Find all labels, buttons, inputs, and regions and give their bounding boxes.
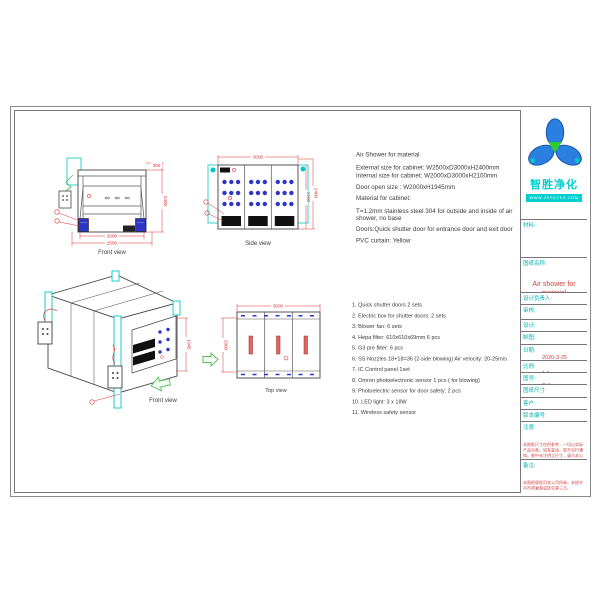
field-audit: 审核: xyxy=(521,305,587,320)
field-remark: 备注: 本图纸版权归本公司所有，未经许可不得复制或转交第三方。 xyxy=(521,460,587,493)
remark-text: 本图纸版权归本公司所有，未经许可不得复制或转交第三方。 xyxy=(523,480,585,491)
top-dim-depth: 2000 xyxy=(224,340,229,351)
door-roller-right xyxy=(136,219,146,232)
field-drawing-no: 图号: P-1 xyxy=(521,373,587,385)
parts-list-item: 10. LED light: 3 x 18W xyxy=(352,399,542,405)
field-customer: 客户: xyxy=(521,398,587,410)
front-dim-width-inner: 2000 xyxy=(107,234,118,239)
spec-line: PVC curtain: Yellow xyxy=(356,237,526,244)
side-dim-width: 3000 xyxy=(253,155,264,160)
control-panel xyxy=(220,168,230,173)
pendant-control-box xyxy=(38,322,52,344)
flow-arrow-right xyxy=(203,353,218,366)
field-designer: 设计负责人: xyxy=(521,293,587,305)
callout-marker xyxy=(55,219,59,223)
side-dim-height-outer: 2400 xyxy=(314,188,319,199)
iso-dim-door-height: 1945 xyxy=(187,339,192,350)
company-name: 智胜净化 xyxy=(523,176,585,192)
parts-list: 1. Quick shutter doors 2 sets 2. Electri… xyxy=(352,302,542,420)
cyan-cap xyxy=(211,168,216,173)
side-view-label: Side view xyxy=(245,241,271,247)
door-roller-left xyxy=(79,219,89,232)
corner-post xyxy=(112,271,119,281)
spec-title: Air Shower for material xyxy=(356,151,526,158)
control-box-front xyxy=(123,226,135,232)
callout-marker xyxy=(90,400,94,404)
front-dim-width-outer: 2500 xyxy=(107,241,118,246)
spec-line: Material for cabinet: xyxy=(356,195,526,202)
parts-list-item: 9. Photoelectric sensor for door safety:… xyxy=(352,388,542,394)
field-draft: 制图: xyxy=(521,332,587,345)
field-notice: 注意: 本图纸尺寸仅供参考，一切以实际产品为准。如有变动，恕不另行通知。图中未注… xyxy=(521,422,587,460)
parts-list-item: 5. G3 pre filter: 6 pcs xyxy=(352,345,542,351)
spec-block: Air Shower for material External size fo… xyxy=(356,151,526,244)
top-view-label: Top view xyxy=(265,388,286,394)
parts-list-item: 8. Omron photoelectronic sensor 1 pcs ( … xyxy=(352,377,542,383)
callout-marker xyxy=(204,200,208,204)
field-date: 日期: 2020-3-25 xyxy=(521,345,587,361)
spec-line: External size for cabinet: W2500xD3000xH… xyxy=(356,164,526,171)
spec-line: Internal size for cabinet: W2000xD3000xH… xyxy=(356,172,526,179)
title-block: 智胜净化 WWW.ZSFILTER.COM 材料: 图纸名称: Air show… xyxy=(520,110,587,493)
pendant-control-box xyxy=(108,366,122,388)
company-website: WWW.ZSFILTER.COM xyxy=(526,194,582,202)
parts-list-item: 7. IC Control panel 1set xyxy=(352,367,542,373)
spec-line: Door open size : W2000xH1945mm xyxy=(356,184,526,191)
top-view: 3000 2000 Top view xyxy=(203,303,320,394)
front-view-label: Front view xyxy=(98,250,126,256)
parts-list-item: 2. Electric box for shutter doors: 2 set… xyxy=(352,313,542,319)
parts-list-item: 4. Hepa filter: 610x610x69mm 6 pcs xyxy=(352,334,542,340)
field-version: 版本编号: xyxy=(521,410,587,422)
spec-line: T=1.2mm stainless steel 304 for outside … xyxy=(356,208,526,222)
parts-list-item: 6. SS Nozzles 18+18=36 (2-side blowing) … xyxy=(352,356,542,362)
front-dim-top: 300 xyxy=(153,163,161,168)
iso-view: 1945 Front view xyxy=(38,271,192,408)
cyan-cap xyxy=(301,167,306,172)
parts-list-item: 11. Wireless safety sensor xyxy=(352,410,542,416)
company-website-bar: WWW.ZSFILTER.COM xyxy=(526,194,582,202)
spec-line: Doors:Quick shutter door for entrance do… xyxy=(356,226,526,233)
iso-view-label: Front view xyxy=(149,398,177,404)
side-view: 3000 2100 2400 Side view xyxy=(204,154,319,247)
front-dim-height: 2400 xyxy=(163,196,168,207)
company-logo xyxy=(523,114,587,176)
field-sheet-size: 图纸尺寸: xyxy=(521,385,587,398)
drawing-canvas: 300 2400 2000 2500 Front view xyxy=(0,0,600,600)
field-design: 设计: xyxy=(521,320,587,332)
callout-marker xyxy=(55,210,59,214)
drawing-name-value: Air shower for material xyxy=(523,280,585,293)
front-view: 300 2400 2000 2500 Front view xyxy=(55,158,168,256)
top-dim-width: 3000 xyxy=(273,304,284,309)
pendant-control-box xyxy=(59,191,71,208)
parts-list-item: 3. Blower fan: 6 sets xyxy=(352,324,542,330)
side-dim-height-inner: 2100 xyxy=(306,192,311,203)
field-drawing-name: 图纸名称: Air shower for material xyxy=(521,258,587,293)
notice-text: 本图纸尺寸仅供参考，一切以实际产品为准。如有变动，恕不另行通知。图中未注明之尺寸… xyxy=(523,442,585,460)
corner-post xyxy=(173,301,180,315)
field-scale: 比例: 1:1 xyxy=(521,361,587,373)
field-material: 材料: xyxy=(521,220,587,258)
parts-list-item: 1. Quick shutter doors 2 sets xyxy=(352,302,542,308)
company-logo-cell: 智胜净化 WWW.ZSFILTER.COM xyxy=(521,110,587,220)
